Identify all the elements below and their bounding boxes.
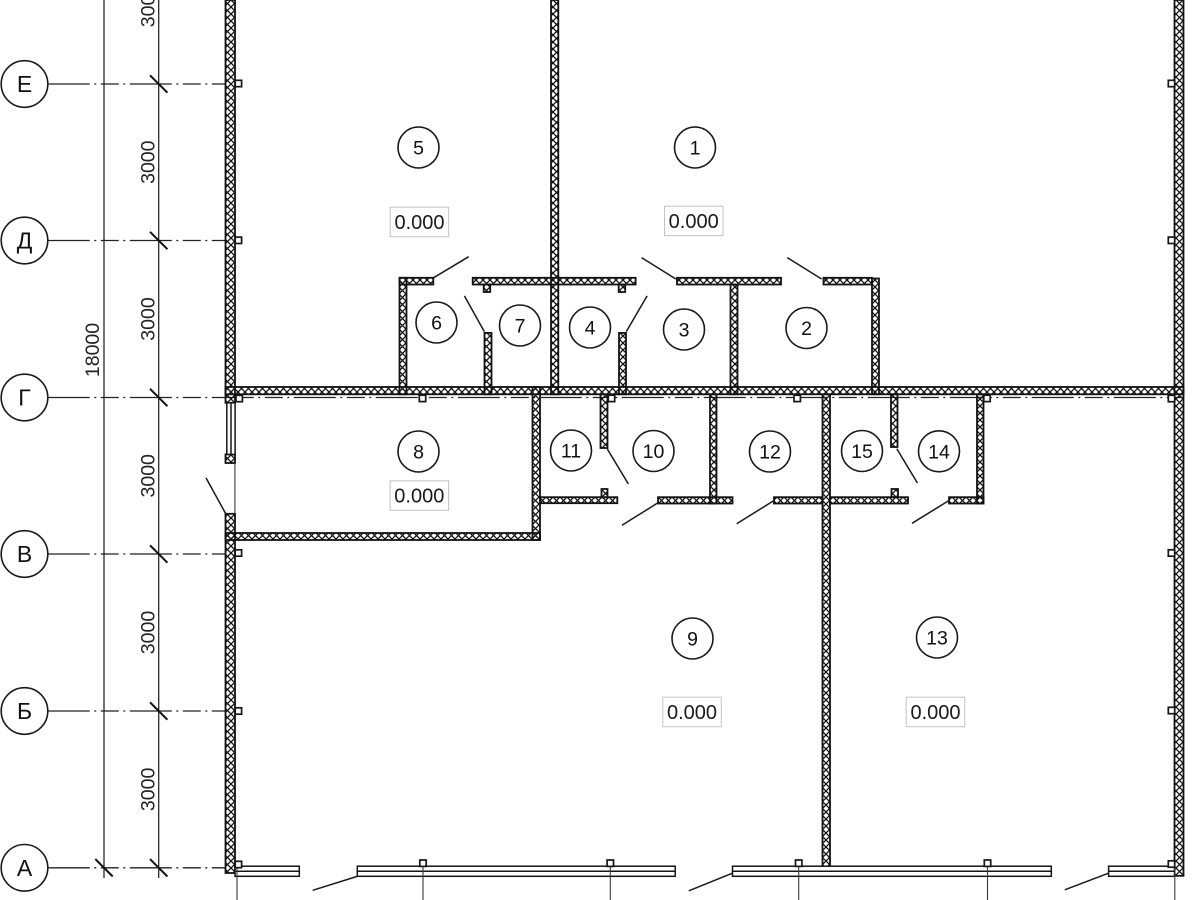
svg-text:3000: 3000 bbox=[138, 611, 160, 655]
svg-text:3000: 3000 bbox=[138, 0, 160, 27]
svg-text:В: В bbox=[17, 541, 32, 567]
svg-text:0.000: 0.000 bbox=[669, 211, 719, 233]
svg-text:3000: 3000 bbox=[138, 768, 160, 812]
svg-text:2: 2 bbox=[801, 318, 812, 340]
svg-text:5: 5 bbox=[413, 138, 424, 160]
svg-text:6: 6 bbox=[431, 313, 442, 335]
svg-text:15: 15 bbox=[851, 441, 873, 463]
svg-text:18000: 18000 bbox=[82, 323, 104, 377]
svg-text:0.000: 0.000 bbox=[394, 212, 444, 234]
svg-text:Б: Б bbox=[17, 698, 32, 724]
svg-text:А: А bbox=[17, 855, 33, 881]
svg-text:Е: Е bbox=[17, 71, 32, 97]
svg-text:12: 12 bbox=[759, 442, 781, 464]
svg-text:0.000: 0.000 bbox=[667, 702, 717, 724]
svg-text:3000: 3000 bbox=[138, 140, 160, 184]
svg-text:7: 7 bbox=[515, 316, 526, 338]
svg-text:14: 14 bbox=[928, 441, 950, 463]
svg-text:4: 4 bbox=[585, 318, 596, 340]
svg-text:9: 9 bbox=[687, 629, 698, 651]
svg-text:0.000: 0.000 bbox=[910, 702, 960, 724]
svg-text:8: 8 bbox=[413, 442, 424, 464]
svg-text:11: 11 bbox=[561, 441, 581, 463]
svg-text:3: 3 bbox=[679, 320, 690, 342]
svg-text:Г: Г bbox=[18, 385, 31, 411]
svg-text:13: 13 bbox=[926, 628, 948, 650]
svg-text:0.000: 0.000 bbox=[394, 486, 444, 508]
svg-text:Д: Д bbox=[17, 228, 33, 254]
svg-text:3000: 3000 bbox=[138, 454, 160, 498]
svg-text:3000: 3000 bbox=[138, 297, 160, 341]
svg-text:1: 1 bbox=[690, 138, 701, 160]
svg-text:10: 10 bbox=[643, 441, 665, 463]
